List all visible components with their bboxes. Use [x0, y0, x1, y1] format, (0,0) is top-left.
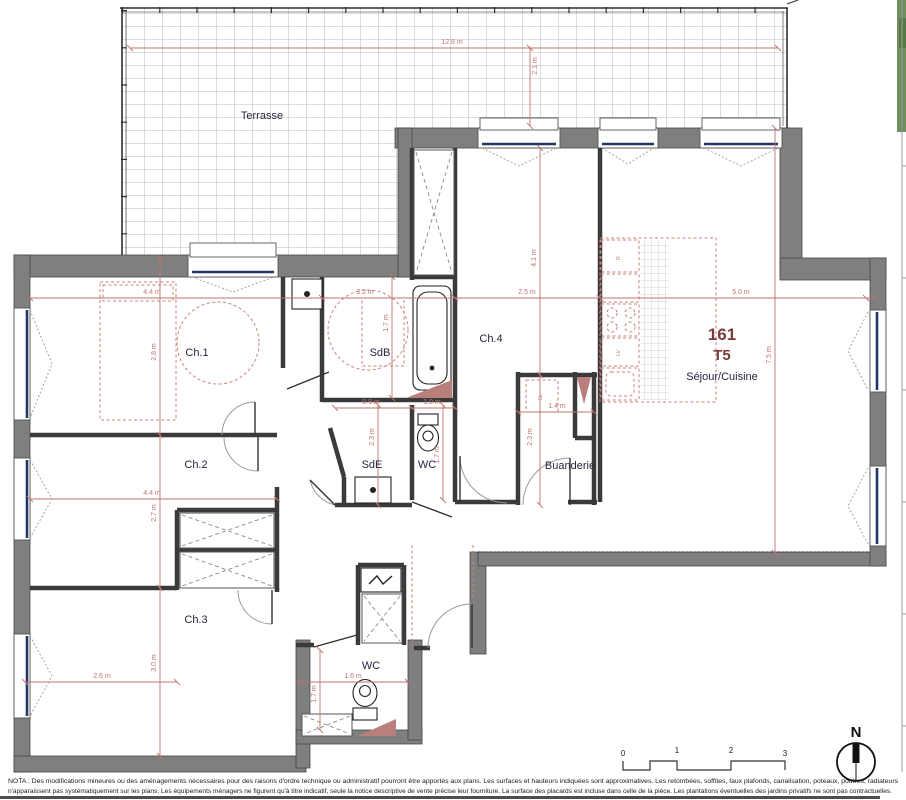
balustrade-corner-tick: [787, 0, 798, 4]
dim-sdb-depth: 1.7 m: [383, 314, 390, 332]
wall-sejour-bottom: [478, 552, 886, 566]
unit-main-room: Séjour/Cuisine: [686, 371, 758, 383]
turning-circle-ch1: [177, 302, 259, 384]
closet-ch2-upper: [180, 513, 274, 548]
window-ch1-opening-symbol: [192, 277, 274, 292]
dim-sde-width: 0.9 m: [362, 399, 380, 406]
window-ch4-lintel: [480, 118, 558, 130]
fixtures: [292, 279, 451, 720]
soffit-triangle-wc-bottom: [358, 719, 396, 736]
washbasin-sde-drain: [370, 487, 376, 493]
label-dishwasher: LV: [616, 349, 622, 355]
kitchen-worktop-tiles: [641, 240, 669, 400]
toilet-top-seat: [423, 431, 433, 441]
scale-tick-0: 0: [621, 749, 626, 758]
door-arc-ch3: [238, 590, 272, 624]
north-letter: N: [851, 724, 862, 741]
dim-wc-top-width: 1.0 m: [423, 399, 441, 406]
label-washing-machine: LL: [538, 394, 544, 400]
label-ch1: Ch.1: [185, 347, 208, 359]
scale-tick-1: 1: [675, 746, 680, 755]
dim-terrace-width: 12.8 m: [441, 39, 463, 46]
dim-ch4-depth: 4.1 m: [531, 249, 538, 267]
dim-ch4-width: 2.5 m: [518, 289, 536, 296]
scale-bar-shape: [623, 761, 785, 770]
dim-sdb-width: 3.2 m: [356, 289, 374, 296]
scale-bar: 0 1 2 3: [621, 746, 788, 770]
dim-ch2-width: 4.4 m: [143, 490, 161, 497]
kitchen-sink-basin: [606, 372, 634, 396]
dim-wc-bottom-depth: 1.7 m: [311, 685, 318, 703]
dim-ch3-depth: 3.0 m: [151, 654, 158, 672]
wall-wc-right: [408, 640, 422, 740]
window-sejour-right-2-symbol: [848, 468, 868, 544]
washbasin-hall-drain: [304, 291, 310, 297]
compass-needle-icon: [853, 744, 860, 763]
window-sejour-top-opening-symbol: [704, 148, 778, 166]
window-ch4-opening-symbol: [482, 148, 556, 166]
partition-sde-slant: [330, 428, 344, 477]
hob-burner-2: [625, 308, 635, 318]
label-buanderie: Buanderie: [545, 460, 595, 472]
dim-ch1-depth: 2.8 m: [151, 343, 158, 361]
door-leaf-wc-top: [412, 502, 452, 517]
scale-tick-3: 3: [783, 749, 788, 758]
wall-wc-left: [296, 640, 310, 768]
closet-ch2-lower: [180, 552, 274, 588]
dim-sde-depth: 2.3 m: [369, 428, 376, 446]
door-terrace-opening-symbol: [602, 148, 654, 164]
dim-sejour-depth: 7.5 m: [766, 346, 773, 364]
dim-sejour-width: 5.0 m: [732, 289, 750, 296]
door-leaf-wc-bottom: [314, 635, 357, 647]
kitchen-sink: [601, 368, 639, 400]
nota-line-1: NOTA : Des modifications mineures ou des…: [8, 778, 898, 785]
dim-ch1-width: 4.4 m: [143, 289, 161, 296]
window-ch1-lintel: [190, 243, 276, 257]
dim-terrace-depth: 2.1 m: [532, 57, 539, 75]
dim-buanderie-width: 1.4 m: [548, 403, 566, 410]
window-sejour-right-1-symbol: [848, 312, 868, 390]
door-arc-entry: [428, 604, 472, 648]
toilet-bottom-seat: [360, 686, 371, 697]
kitchen-hob: [601, 304, 639, 336]
door-arc-ch1: [222, 402, 255, 435]
label-wc-bottom: WC: [362, 660, 380, 672]
toilet-bottom-tank: [353, 708, 377, 720]
door-arc-ch2: [224, 437, 258, 471]
nota-line-2: n'apparaissent pas systématiquement sur …: [8, 788, 892, 795]
scale-tick-2: 2: [729, 746, 734, 755]
label-sdb: SdB: [370, 347, 391, 359]
bathtub-drain: [430, 366, 435, 371]
kitchen-fridge: [601, 240, 639, 272]
window-ch3-left-symbol: [30, 636, 52, 716]
hob-burner-1: [607, 308, 617, 318]
unit-label: 161 T5 Séjour/Cuisine: [686, 325, 758, 383]
floor-plan-drawing: 12.8 m 2.1 m 4.4 m 2.8 m 3.2 m 1.7 m 2.5…: [0, 0, 906, 800]
bed-ch1: [100, 282, 176, 420]
nota-block: NOTA : Des modifications mineures ou des…: [8, 778, 898, 795]
label-ch2: Ch.2: [184, 459, 207, 471]
bed-ch1-pillow: [103, 285, 173, 301]
wall-terrace-right: [780, 128, 802, 274]
door-terrace-lintel: [600, 118, 656, 130]
sheet-border-ticks: [902, 166, 906, 726]
window-sejour-top-lintel: [702, 118, 780, 130]
dim-buanderie-depth: 2.3 m: [527, 428, 534, 446]
soffit-triangle-buanderie: [577, 377, 591, 404]
label-sde: SdE: [362, 459, 383, 471]
door-leaf-sde: [310, 480, 335, 505]
label-fridge: R: [616, 256, 622, 260]
floor-plan-page: 12.8 m 2.1 m 4.4 m 2.8 m 3.2 m 1.7 m 2.5…: [0, 0, 906, 800]
sheet-border-bottom: [0, 796, 880, 799]
window-ch1-left-symbol: [30, 310, 52, 418]
dim-wc-bottom-width: 1.6 m: [344, 673, 362, 680]
north-compass: N: [837, 724, 875, 781]
door-arc-ch4: [460, 456, 507, 503]
unit-number: 161: [708, 325, 736, 344]
label-terrasse: Terrasse: [241, 110, 283, 122]
turning-circle-sdb: [328, 290, 408, 370]
unit-type: T5: [713, 347, 731, 364]
label-wc-top: WC: [418, 459, 436, 471]
toilet-top-tank: [418, 414, 438, 425]
window-ch1-opening: [188, 255, 278, 277]
water-heater-icon: [361, 568, 401, 592]
wall-bottom-left: [14, 756, 306, 772]
label-ch3: Ch.3: [184, 614, 207, 626]
hob-burner-3: [607, 322, 617, 332]
dim-ch2-depth: 2.7 m: [151, 504, 158, 522]
label-ch4: Ch.4: [479, 333, 502, 345]
dim-ch3-width: 2.6 m: [93, 673, 111, 680]
hob-burner-4: [625, 322, 635, 332]
